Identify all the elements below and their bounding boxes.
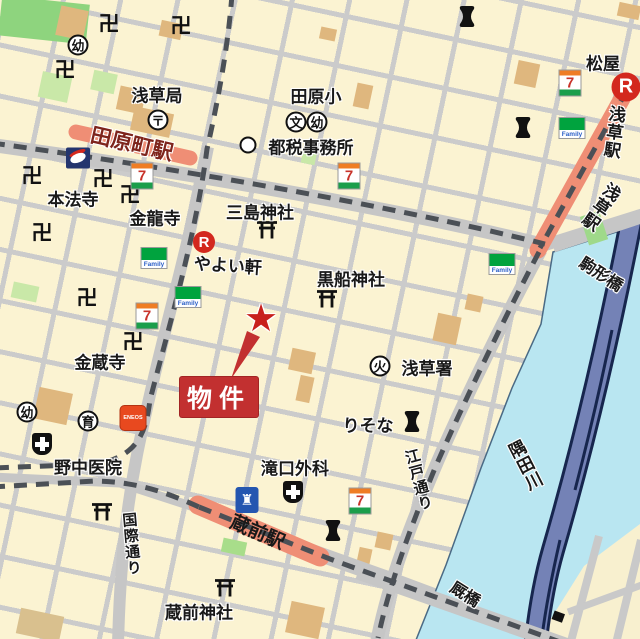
- clinic-label: 野中医院: [54, 454, 122, 479]
- familymart-icon: Family: [489, 253, 516, 275]
- hospital-icon: [283, 481, 303, 503]
- shrine-label: 蔵前神社: [165, 599, 233, 624]
- seven-eleven-icon: 7: [131, 163, 154, 190]
- familymart-icon: Family: [559, 117, 586, 139]
- temple-manji-icon: 卍: [32, 217, 53, 247]
- temple-manji-icon: 卍: [55, 54, 76, 84]
- post-office-icon: 〒: [148, 110, 169, 131]
- government-office-icon: [240, 137, 257, 154]
- shrine-label: 黒船神社: [317, 266, 385, 291]
- seven-eleven-icon: 7: [338, 163, 361, 190]
- fire-station-icon: 火: [370, 356, 391, 377]
- kindergarten-icon: 幼: [307, 112, 328, 133]
- restaurant-label: やよい軒: [193, 249, 263, 279]
- bank-icon: [323, 519, 344, 547]
- kindergarten-icon: 幼: [68, 35, 89, 56]
- area-map: 卍 卍 卍 卍 卍 卍 卍 卍 卍 7 7 7 7 7 Family Famil…: [0, 0, 640, 639]
- kindergarten-icon: 幼: [17, 402, 38, 423]
- temple-label: 本法寺: [48, 186, 99, 211]
- seven-eleven-icon: 7: [136, 303, 159, 330]
- temple-label: 金龍寺: [130, 205, 181, 230]
- temple-manji-icon: 卍: [171, 10, 192, 40]
- familymart-icon: Family: [141, 247, 168, 269]
- property-star-icon: ★: [244, 300, 278, 338]
- temple-manji-icon: 卍: [22, 160, 43, 190]
- bank-icon: [402, 410, 423, 438]
- eneos-gas-station-icon: ENEOS: [120, 405, 147, 431]
- shrine-label: 三島神社: [226, 199, 294, 224]
- bank-icon: [513, 116, 534, 144]
- clinic-label: 滝口外科: [261, 455, 329, 480]
- bank-label: りそな: [343, 412, 394, 437]
- familymart-icon: Family: [175, 286, 202, 308]
- shrine-torii-icon: [315, 289, 339, 314]
- temple-manji-icon: 卍: [99, 8, 120, 38]
- bank-icon: [457, 5, 478, 33]
- restaurant-r-icon: R: [612, 73, 640, 102]
- school-icon: 文: [286, 112, 307, 133]
- convenience-store-icon: [66, 148, 90, 169]
- temple-manji-icon: 卍: [77, 282, 98, 312]
- seven-eleven-icon: 7: [559, 70, 582, 97]
- elementary-school-label: 田原小: [291, 83, 342, 108]
- seven-eleven-icon: 7: [349, 488, 372, 515]
- shrine-torii-icon: [90, 502, 114, 527]
- nursery-icon: 育: [78, 411, 99, 432]
- post-office-label: 浅草局: [132, 82, 183, 107]
- tax-office-label: 都税事務所: [269, 134, 354, 159]
- hospital-icon: [32, 433, 52, 455]
- temple-manji-icon: 卍: [123, 326, 144, 356]
- store-label: 松屋: [586, 50, 620, 75]
- property-label-box: 物件: [180, 377, 258, 417]
- temple-label: 金蔵寺: [75, 349, 126, 374]
- police-station-label: 浅草署: [402, 355, 453, 380]
